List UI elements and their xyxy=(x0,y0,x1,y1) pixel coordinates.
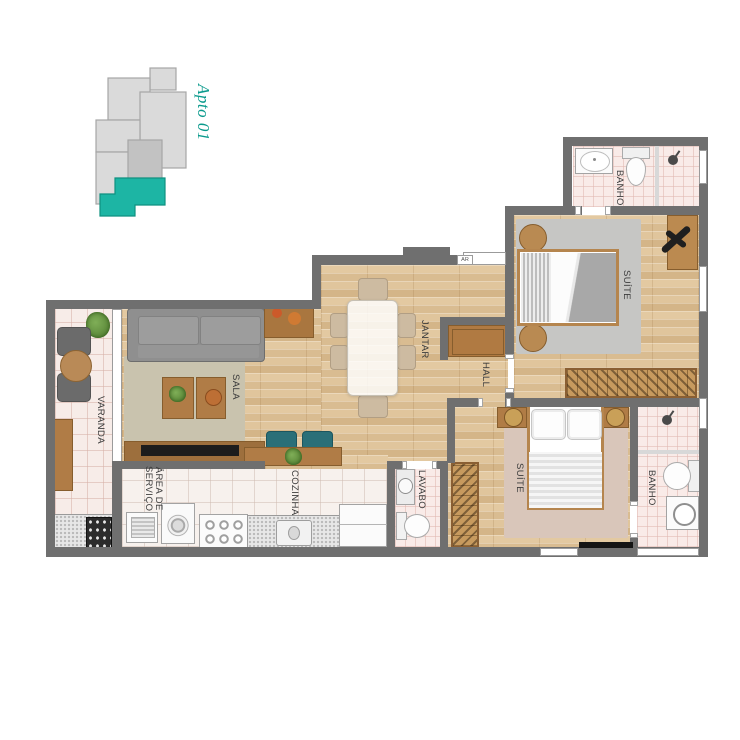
room-label-suite-bottom: SUÍTE xyxy=(515,463,525,493)
wall-segment xyxy=(440,317,448,360)
wall-segment xyxy=(387,461,395,547)
bed-blanket xyxy=(551,253,616,322)
wall-segment xyxy=(46,300,55,557)
room-label-banho-top: BANHO xyxy=(615,170,625,206)
toilet-bowl xyxy=(404,514,430,538)
plant xyxy=(169,386,186,402)
room-label-lavabo: LAVABO xyxy=(417,470,427,509)
refrigerator-door-line xyxy=(339,524,387,525)
door-jamb xyxy=(605,206,611,215)
hall-cabinet-panel xyxy=(452,329,504,355)
key-plan-unit-core xyxy=(128,140,162,180)
wreath-decor xyxy=(285,448,302,465)
wall-segment xyxy=(112,461,122,547)
door-jamb xyxy=(630,501,638,506)
window xyxy=(699,398,707,429)
room-label-banho-bottom: BANHO xyxy=(647,470,657,506)
pillow xyxy=(531,409,566,440)
unit-title: Apto 01 xyxy=(193,84,213,141)
window xyxy=(699,150,707,184)
door-jamb xyxy=(478,398,483,407)
table-lamp xyxy=(504,408,523,427)
faucet xyxy=(593,158,596,161)
wall-segment xyxy=(505,206,582,215)
glass-sliding-door xyxy=(112,309,122,463)
room-label-suite-top: SUÍTE xyxy=(622,270,632,300)
door-jamb xyxy=(506,398,511,407)
dining-chair xyxy=(358,395,388,418)
wall-segment xyxy=(508,398,708,407)
door-jamb xyxy=(575,206,581,215)
window xyxy=(637,548,699,556)
wall-segment xyxy=(440,317,506,325)
shower-partition xyxy=(637,450,699,454)
door-jamb xyxy=(402,461,407,469)
round-nightstand xyxy=(519,224,547,252)
wall-segment xyxy=(608,206,708,215)
decor-tray xyxy=(205,389,222,406)
building-key-plan xyxy=(88,66,208,222)
window xyxy=(699,266,707,312)
ac-unit-label-box: AR xyxy=(457,255,473,265)
room-label-sala: SALA xyxy=(231,374,241,400)
decor-item xyxy=(272,308,282,318)
key-plan-unit xyxy=(150,68,176,90)
toilet-bowl xyxy=(663,462,691,490)
refrigerator xyxy=(339,504,387,547)
room-label-hall: HALL xyxy=(481,362,491,387)
table-lamp xyxy=(606,408,625,427)
door-jamb xyxy=(505,388,514,393)
window xyxy=(540,548,578,556)
kitchen-sink-basin xyxy=(288,526,300,540)
door-jamb xyxy=(505,354,514,359)
pillow xyxy=(567,409,602,440)
wall-segment xyxy=(440,461,448,547)
room-label-area-servico: ÁREA DE SERVIÇO xyxy=(144,466,163,511)
wall-segment xyxy=(699,137,708,557)
dining-chair xyxy=(358,278,388,301)
sofa-seat xyxy=(138,345,259,358)
wall-segment xyxy=(115,461,265,469)
duvet xyxy=(529,452,602,508)
tv xyxy=(141,445,239,456)
bed-headboard-cushions xyxy=(521,253,551,322)
wall-segment xyxy=(46,300,321,309)
door-jamb xyxy=(630,533,638,538)
wall-segment xyxy=(46,547,708,557)
wardrobe-suite-bottom xyxy=(451,462,479,548)
laundry-tank-basin xyxy=(131,517,155,538)
round-nightstand xyxy=(519,324,547,352)
wall-segment xyxy=(403,247,450,255)
bathroom-sink xyxy=(673,503,696,526)
decor-item xyxy=(288,312,301,325)
sofa-cushion xyxy=(138,316,199,345)
wall-segment xyxy=(563,137,708,146)
balcony-sideboard xyxy=(54,419,73,491)
wardrobe-suite-top xyxy=(565,368,697,398)
bathroom-sink xyxy=(580,151,610,172)
dining-chair xyxy=(397,345,416,370)
room-label-varanda: VARANDA xyxy=(96,396,106,444)
wall-segment xyxy=(447,407,455,463)
cooktop xyxy=(199,514,248,548)
washing-machine xyxy=(161,503,195,544)
wall-segment xyxy=(563,137,572,215)
room-label-cozinha: COZINHA xyxy=(290,470,300,516)
lavabo-sink xyxy=(398,478,413,494)
room-label-jantar: JANTAR xyxy=(420,320,430,359)
balcony-table xyxy=(60,350,92,382)
dining-table xyxy=(347,300,398,396)
wall-segment xyxy=(312,255,463,265)
floor-plan-apto-01: Apto 01 xyxy=(0,0,740,740)
wall-segment xyxy=(447,398,482,407)
dining-chair xyxy=(397,313,416,338)
window-dark-sill xyxy=(579,542,633,548)
sofa-cushion xyxy=(200,316,261,345)
shower-partition xyxy=(655,146,659,207)
door-jamb xyxy=(432,461,437,469)
wall-segment xyxy=(505,206,514,358)
wall-segment xyxy=(630,407,638,505)
barbecue-grill-icon xyxy=(86,517,112,548)
ac-label: AR xyxy=(461,257,469,263)
